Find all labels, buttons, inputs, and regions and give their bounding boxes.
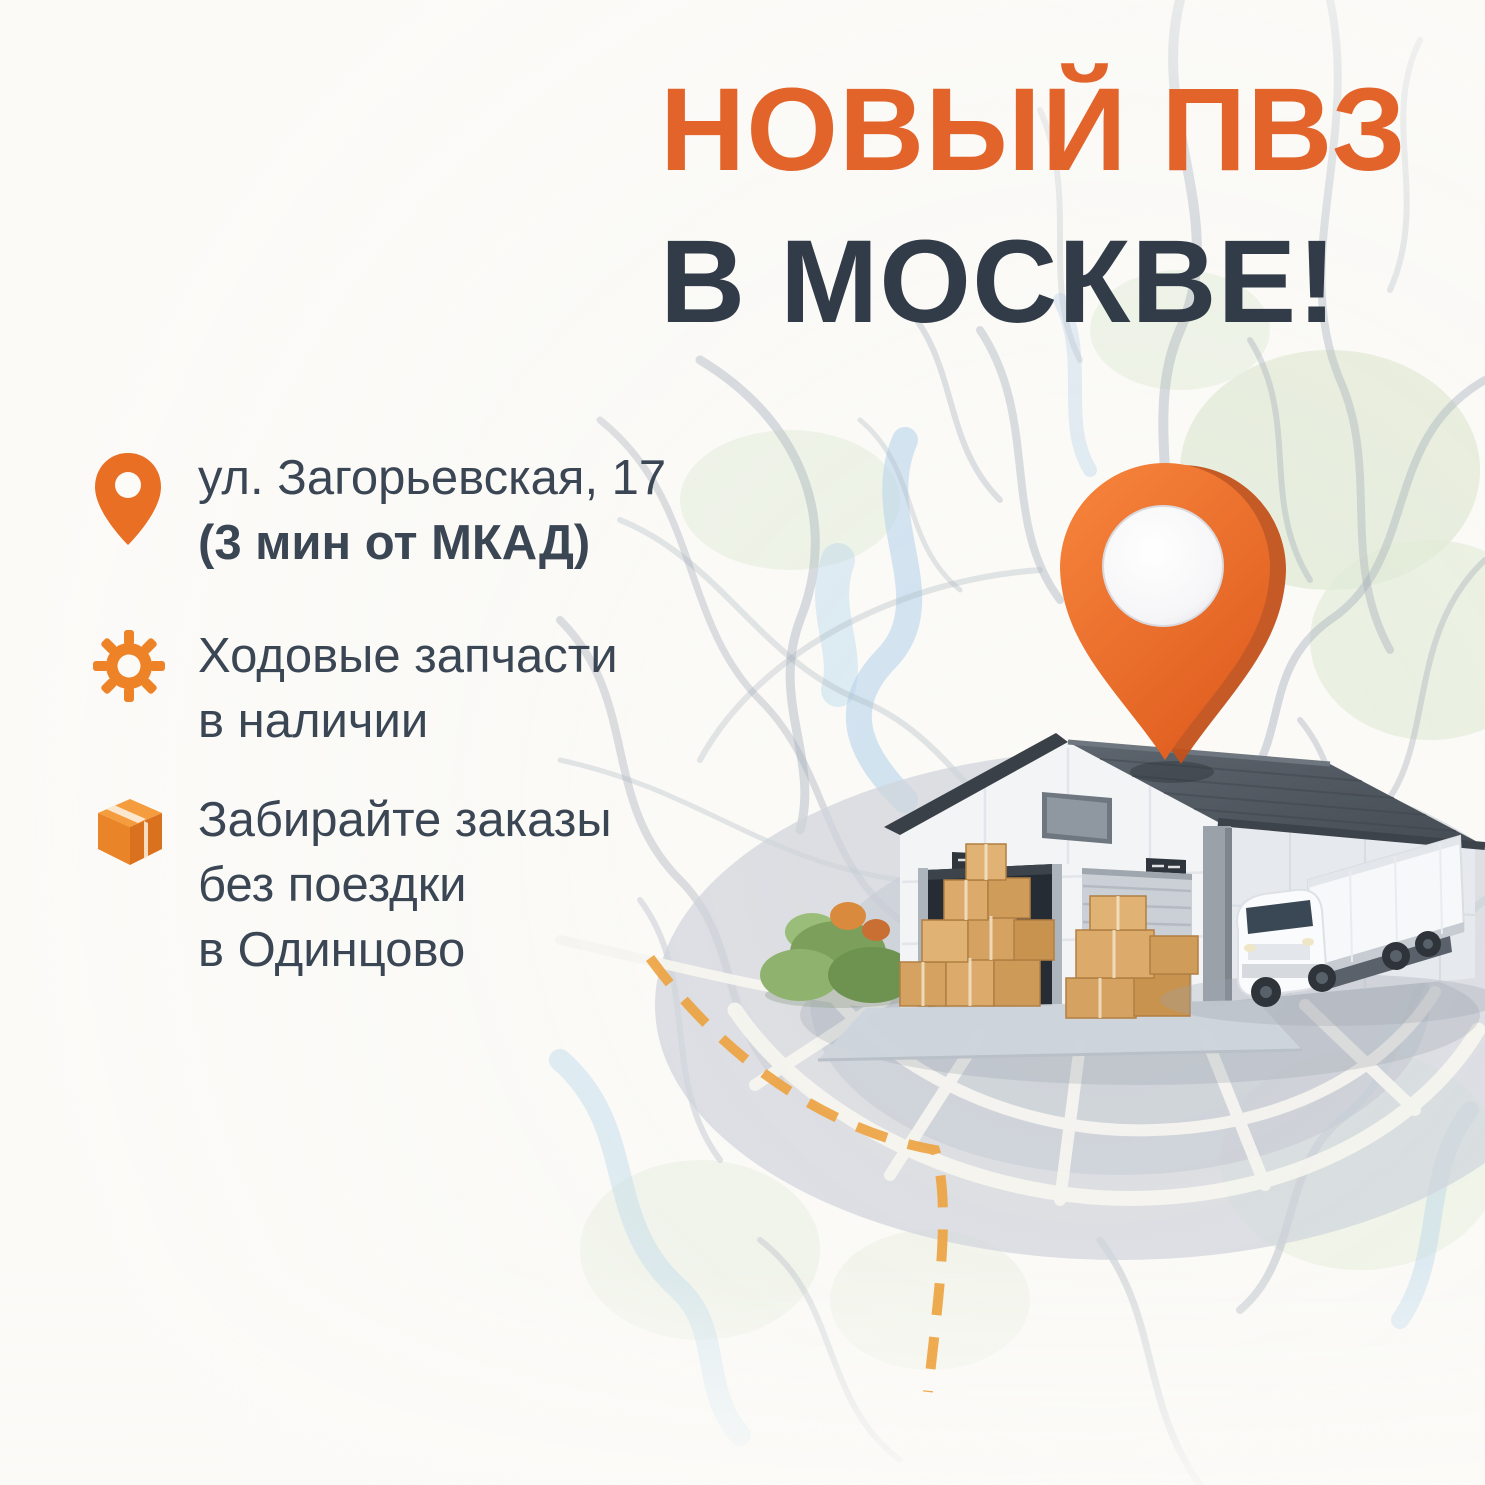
promo-banner: НОВЫЙ ПВЗ В МОСКВЕ! ул. Загорьевская, 17… [0,0,1485,1485]
orders-line-2: без поездки [198,853,612,918]
title-line-1: НОВЫЙ ПВЗ [660,54,1407,206]
orders-line-3: в Одинцово [198,918,612,983]
location-pin-icon [92,446,172,564]
parts-line-1: Ходовые запчасти [198,624,618,689]
address-line-1: ул. Загорьевская, 17 [198,446,666,511]
pin-shadow [1130,761,1214,783]
feature-item-parts: Ходовые запчасти в наличии [92,624,618,754]
gear-icon [92,624,172,720]
feature-item-orders: Забирайте заказы без поездки в Одинцово [92,788,612,983]
parts-line-2: в наличии [198,689,618,754]
orders-line-1: Забирайте заказы [198,788,612,853]
package-icon [92,788,172,886]
feature-item-address: ул. Загорьевская, 17 (3 мин от МКАД) [92,446,666,576]
title-line-2: В МОСКВЕ! [660,206,1407,358]
page-title: НОВЫЙ ПВЗ В МОСКВЕ! [660,54,1407,358]
address-line-2: (3 мин от МКАД) [198,511,666,576]
